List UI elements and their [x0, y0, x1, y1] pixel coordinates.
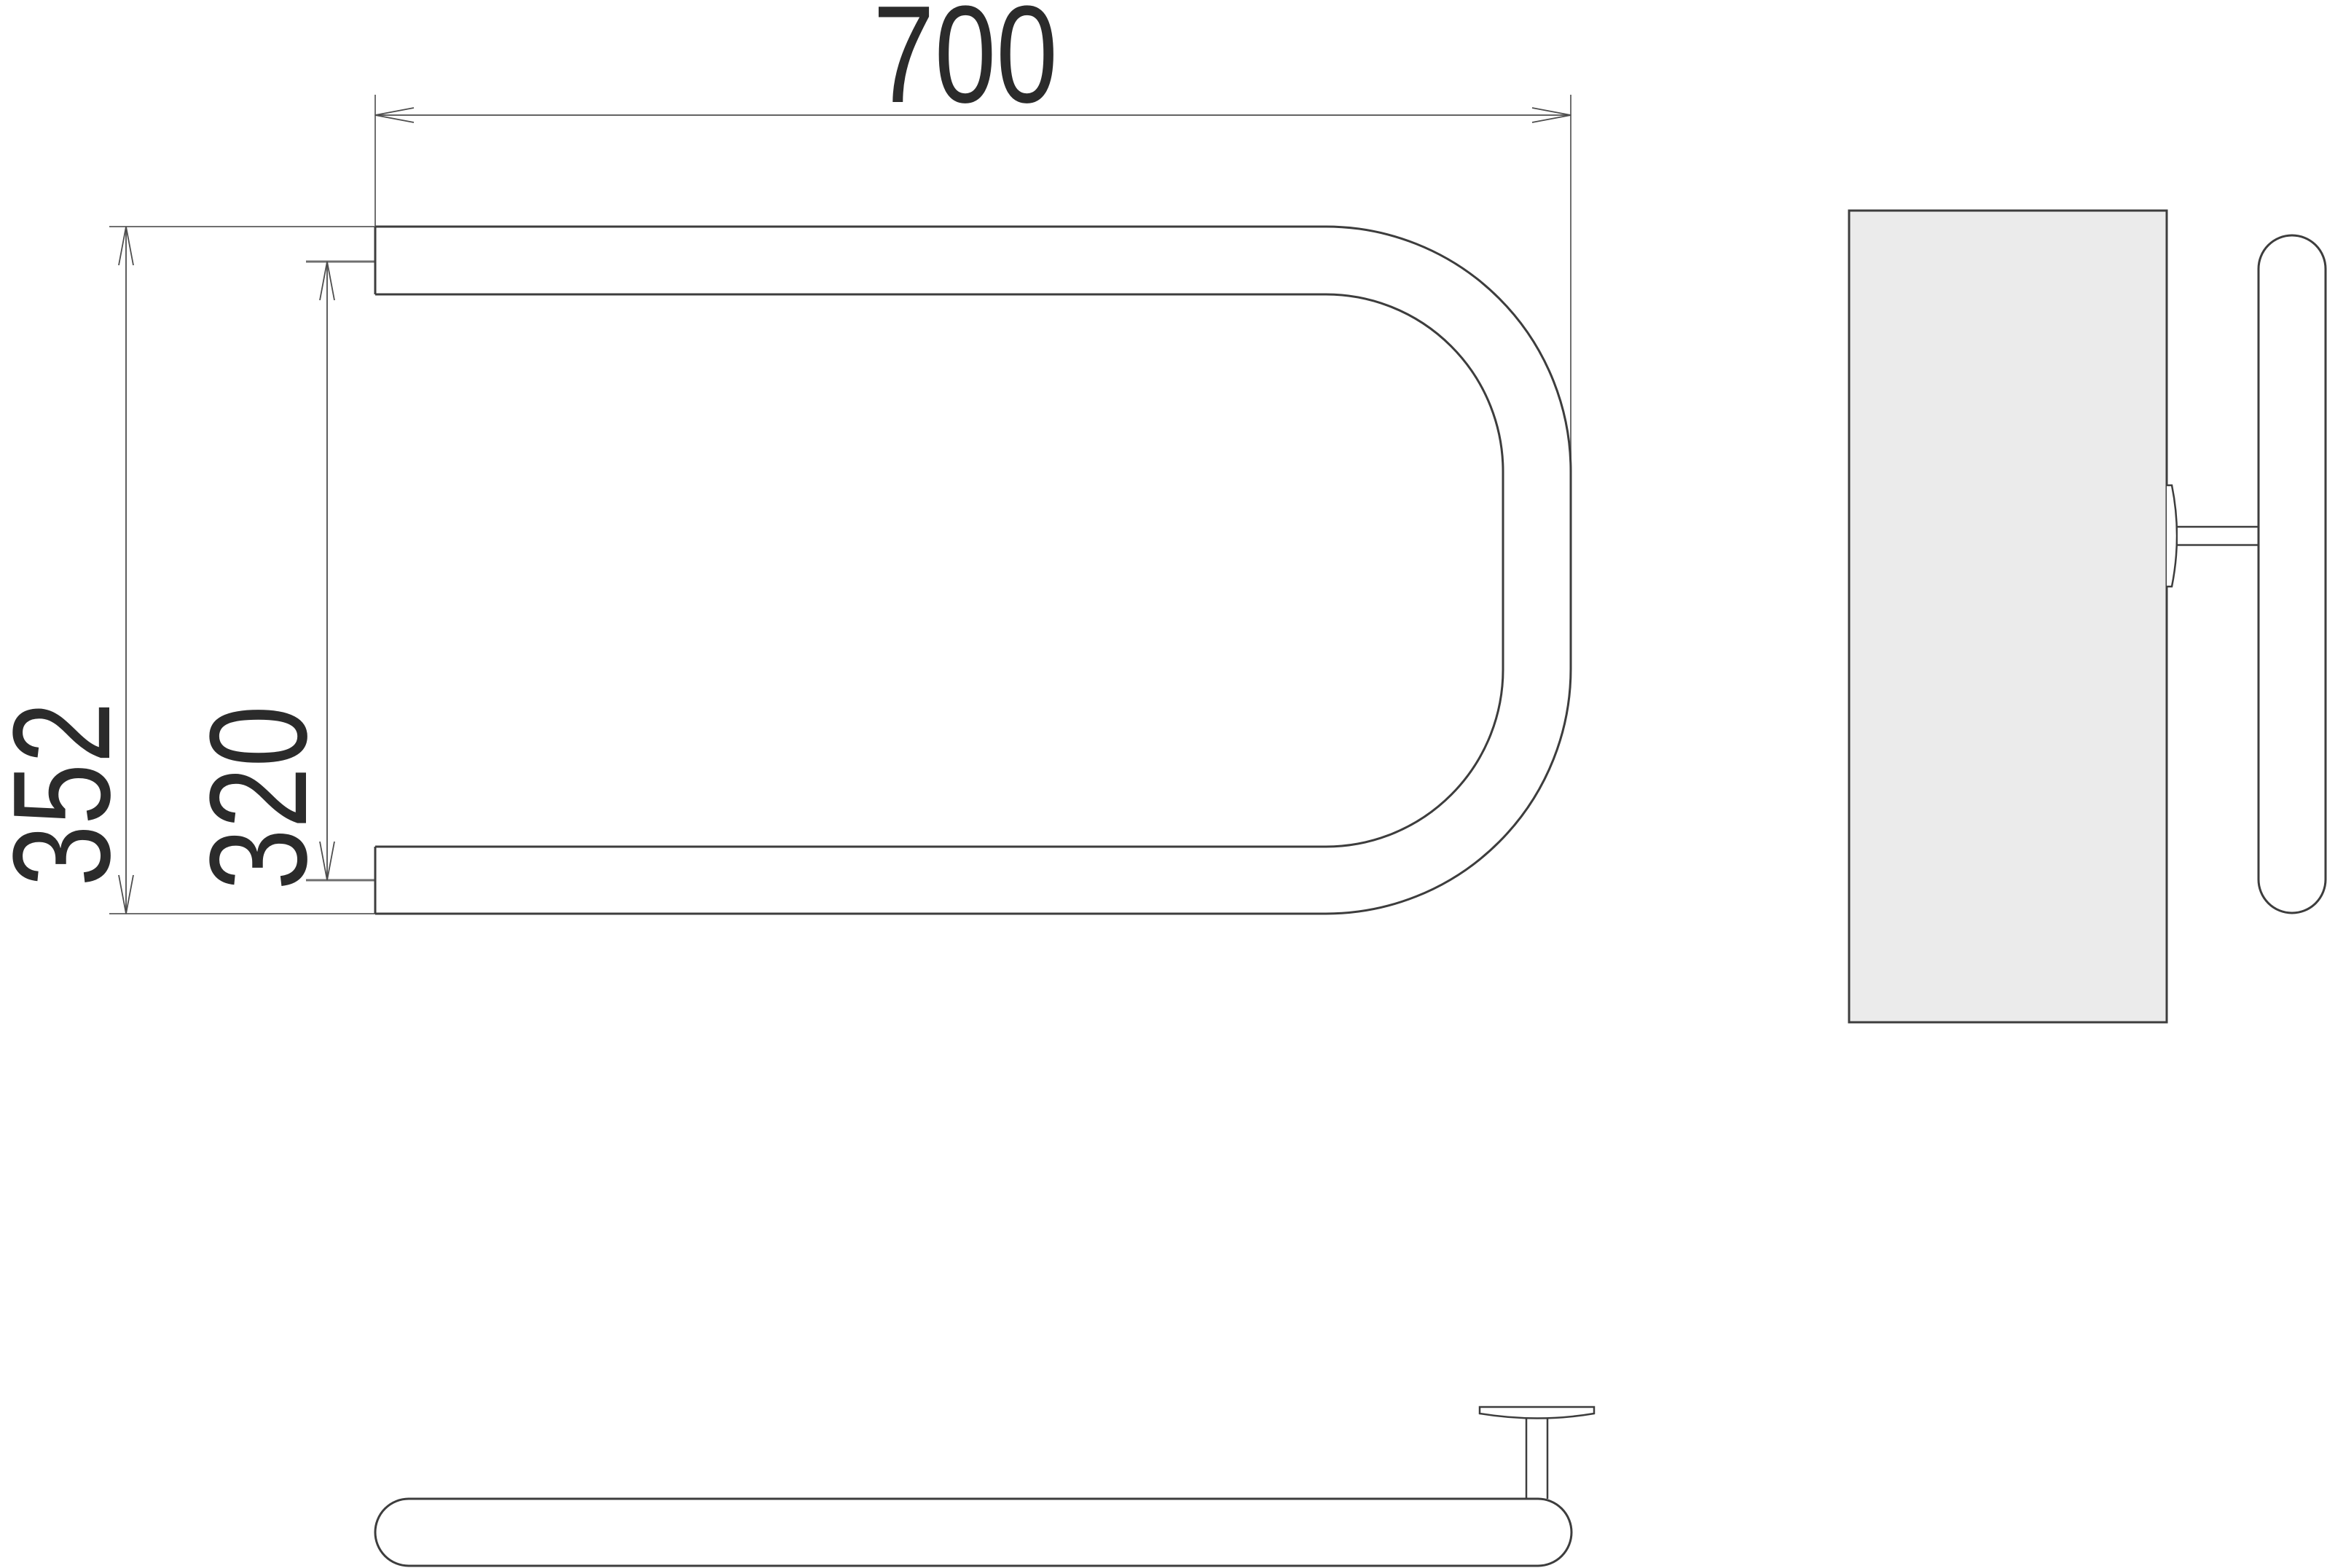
- towel-rail-drawing: 700 352 320: [0, 0, 2327, 1568]
- tube-inner-contour: [375, 294, 1503, 847]
- dimension-352: 352: [0, 227, 139, 914]
- side-view: [1849, 211, 2326, 1022]
- bracket-flange-side: [2167, 485, 2177, 587]
- technical-drawing-page: 700 352 320: [0, 0, 2327, 1568]
- front-view: 700 352 320: [0, 0, 1571, 914]
- dimension-label-320: 320: [181, 705, 336, 890]
- bottom-view: [375, 1407, 1594, 1566]
- stem-fill: [2178, 528, 2259, 544]
- tube-outer-contour: [375, 227, 1571, 914]
- dimension-label-352: 352: [0, 702, 139, 887]
- tube-side-profile: [2259, 235, 2326, 913]
- dimension-700: 700: [375, 0, 1571, 132]
- dimension-label-700: 700: [873, 0, 1058, 132]
- wall-flange-bottom: [1480, 1407, 1594, 1419]
- wall-plate: [1849, 211, 2167, 1022]
- dimension-320: 320: [181, 262, 336, 890]
- tube-bottom-profile: [375, 1499, 1571, 1566]
